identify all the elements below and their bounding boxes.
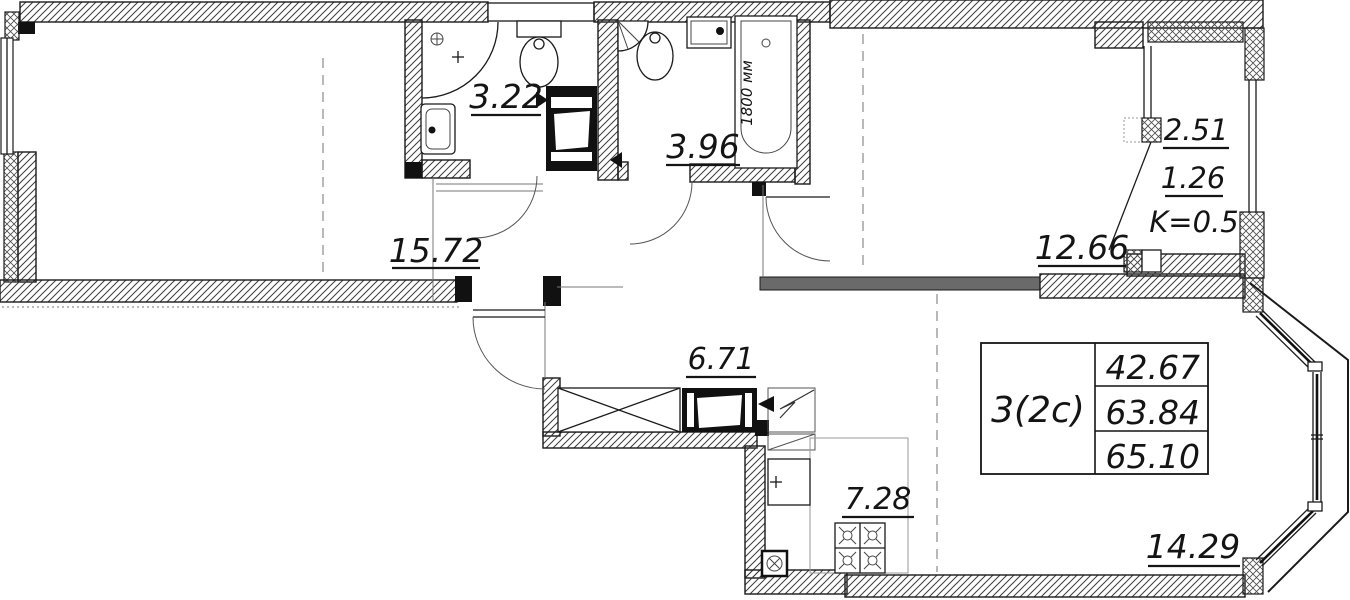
wardrobe <box>558 388 680 432</box>
wall-jamb <box>18 22 35 34</box>
bathtub: 1800 мм <box>735 16 797 168</box>
label-living-room-area: 14.29 <box>1146 527 1240 566</box>
apartment-type: 3(2c) <box>991 390 1085 431</box>
summary-table: 3(2c) 42.67 63.84 65.10 <box>981 343 1208 476</box>
bay-window <box>1250 283 1348 592</box>
washing-machine <box>546 86 597 171</box>
entrance-arrow-icon <box>758 396 774 412</box>
vent-niche <box>488 3 594 21</box>
room-labels: 15.72 3.22 3.96 12.66 6.71 7.28 14.29 2.… <box>389 77 1240 566</box>
bathroom-door-arc <box>630 182 692 244</box>
label-kitchen-area: 7.28 <box>845 482 912 517</box>
stove <box>835 523 885 573</box>
total-area-value: 65.10 <box>1106 437 1200 476</box>
washbasin <box>687 17 731 48</box>
label-hallway-area: 6.71 <box>688 342 755 377</box>
bedroom-door-arc <box>473 317 545 389</box>
label-balcony-area-reduced: 1.26 <box>1161 161 1226 195</box>
bathtub-length-label: 1800 мм <box>738 60 756 126</box>
living-area-value: 42.67 <box>1106 348 1200 387</box>
label-room-area: 12.66 <box>1035 228 1129 267</box>
toilet <box>637 32 673 80</box>
door-jamb <box>543 276 561 306</box>
door-jamb <box>455 276 472 302</box>
label-bathroom-area: 3.96 <box>666 127 739 166</box>
entrance-door <box>758 388 815 450</box>
label-balcony-coefficient: K=0.5 <box>1149 205 1238 239</box>
floor-plan: 1800 мм <box>0 0 1350 600</box>
room-door-arc <box>766 197 830 261</box>
hall-cabinet <box>682 388 757 432</box>
kitchen-sink <box>768 459 810 505</box>
floor-drain <box>762 551 787 576</box>
door-jamb <box>755 420 769 436</box>
label-shower-room-area: 3.22 <box>469 77 542 116</box>
label-balcony-area-full: 2.51 <box>1164 113 1229 147</box>
washbasin <box>421 104 455 154</box>
area-value: 63.84 <box>1106 393 1200 432</box>
label-bedroom-area: 15.72 <box>389 231 483 270</box>
shower-door-arc <box>475 176 537 238</box>
exterior-walls <box>0 0 1264 597</box>
